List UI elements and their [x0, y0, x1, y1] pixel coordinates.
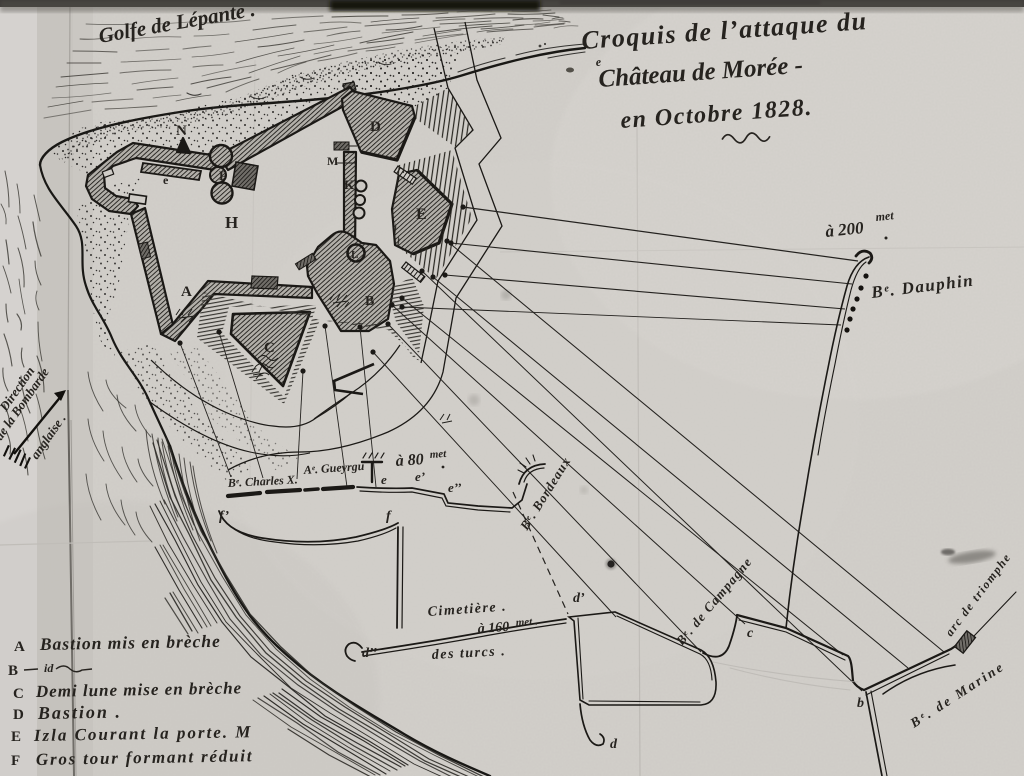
svg-text:D: D [13, 707, 24, 723]
svg-text:H: H [225, 213, 238, 232]
svg-text:A: A [181, 284, 192, 300]
svg-text:Izla Courant la porte. M: Izla Courant la porte. M [33, 722, 253, 745]
svg-text:d’: d’ [573, 591, 585, 606]
svg-text:f’: f’ [219, 509, 229, 524]
svg-text:d’’: d’’ [362, 646, 378, 661]
svg-text:à 160: à 160 [477, 620, 509, 637]
svg-text:e’: e’ [415, 469, 425, 484]
svg-text:M: M [327, 154, 338, 168]
svg-text:F: F [11, 753, 20, 769]
svg-text:E: E [416, 206, 427, 223]
svg-text:Demi lune mise en brèche: Demi lune mise en brèche [35, 678, 243, 701]
svg-text:e: e [381, 472, 387, 487]
svg-text:D: D [370, 119, 381, 135]
svg-text:met: met [875, 208, 895, 224]
svg-text:à 200: à 200 [824, 218, 865, 241]
svg-text:Bastion .: Bastion . [37, 702, 122, 723]
svg-text:F: F [219, 168, 227, 183]
svg-text:d: d [610, 737, 618, 752]
svg-text:A: A [14, 639, 25, 655]
svg-text:N: N [176, 123, 187, 139]
svg-text:e’’: e’’ [448, 480, 461, 495]
svg-text:c: c [747, 626, 754, 641]
svg-text:L: L [351, 249, 358, 261]
svg-text:C: C [264, 340, 275, 356]
svg-text:B: B [365, 294, 374, 309]
svg-text:b: b [857, 696, 864, 711]
svg-text:e: e [163, 173, 169, 187]
svg-text:C: C [13, 686, 24, 702]
svg-text:E: E [11, 729, 21, 745]
svg-text:id: id [44, 661, 54, 675]
svg-text:K: K [344, 177, 355, 192]
svg-text:Bastion mis en brèche: Bastion mis en brèche [39, 631, 221, 654]
svg-text:met .: met . [515, 615, 538, 629]
svg-text:B: B [8, 663, 18, 679]
svg-text:met: met [429, 448, 447, 461]
svg-text:Gros tour formant réduit: Gros tour formant réduit [36, 746, 254, 769]
svg-text:à 80: à 80 [395, 451, 424, 470]
